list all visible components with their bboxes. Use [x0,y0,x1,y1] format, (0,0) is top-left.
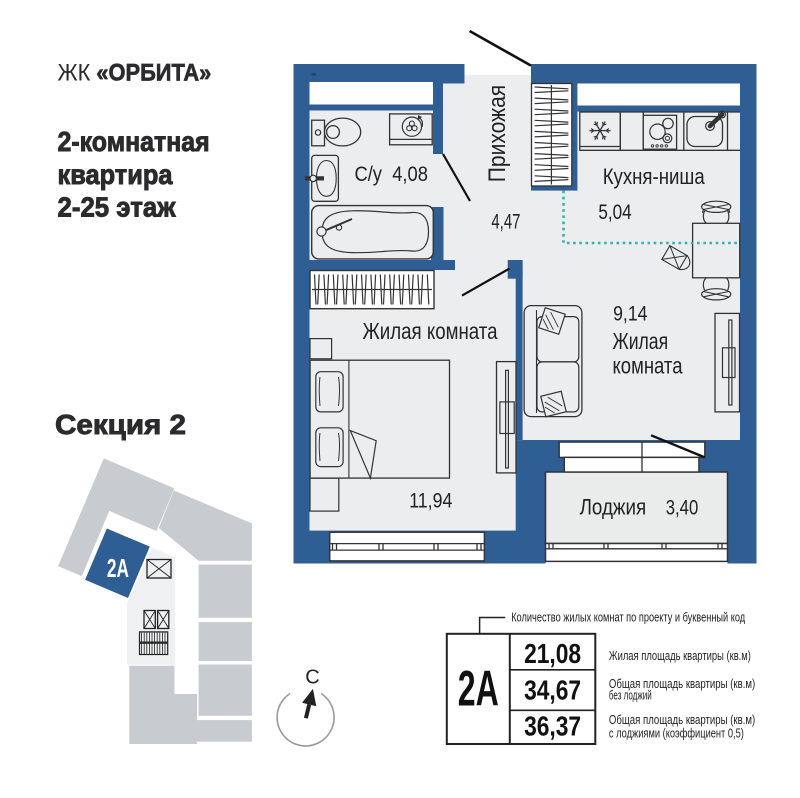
svg-text:С: С [305,667,319,689]
svg-text:Прихожая: Прихожая [484,85,511,182]
svg-text:квартира: квартира [58,159,174,190]
svg-text:с лоджиями (коэффициент 0,5): с лоджиями (коэффициент 0,5) [609,726,744,740]
svg-text:Секция 2: Секция 2 [55,409,186,440]
svg-text:21,08: 21,08 [524,638,581,669]
svg-text:Лоджия: Лоджия [580,495,647,520]
svg-text:36,37: 36,37 [524,711,581,742]
svg-text:2-25 этаж: 2-25 этаж [58,192,176,223]
svg-text:Жилая: Жилая [613,328,669,354]
svg-text:Общая площадь квартиры (кв.м): Общая площадь квартиры (кв.м) [609,713,755,727]
svg-text:2А: 2А [107,555,129,583]
svg-text:2А: 2А [458,661,499,717]
svg-text:Количество жилых комнат по про: Количество жилых комнат по проекту и бук… [511,610,746,624]
svg-text:С/у 4,08: С/у 4,08 [354,162,428,186]
svg-text:Кухня-ниша: Кухня-ниша [603,164,706,189]
svg-text:комната: комната [613,352,683,378]
svg-text:9,14: 9,14 [613,302,647,326]
svg-text:без лоджий: без лоджий [609,689,652,703]
svg-text:11,94: 11,94 [409,489,452,513]
svg-text:Жилая комната: Жилая комната [363,318,498,344]
svg-text:Жилая площадь квартиры (кв.м): Жилая площадь квартиры (кв.м) [609,649,751,663]
svg-text:4,47: 4,47 [491,210,520,234]
svg-text:3,40: 3,40 [666,496,699,520]
svg-text:ЖК «ОРБИТА»: ЖК «ОРБИТА» [58,60,212,87]
svg-text:34,67: 34,67 [524,675,581,706]
svg-text:2-комнатная: 2-комнатная [58,126,210,157]
svg-text:5,04: 5,04 [598,200,631,224]
